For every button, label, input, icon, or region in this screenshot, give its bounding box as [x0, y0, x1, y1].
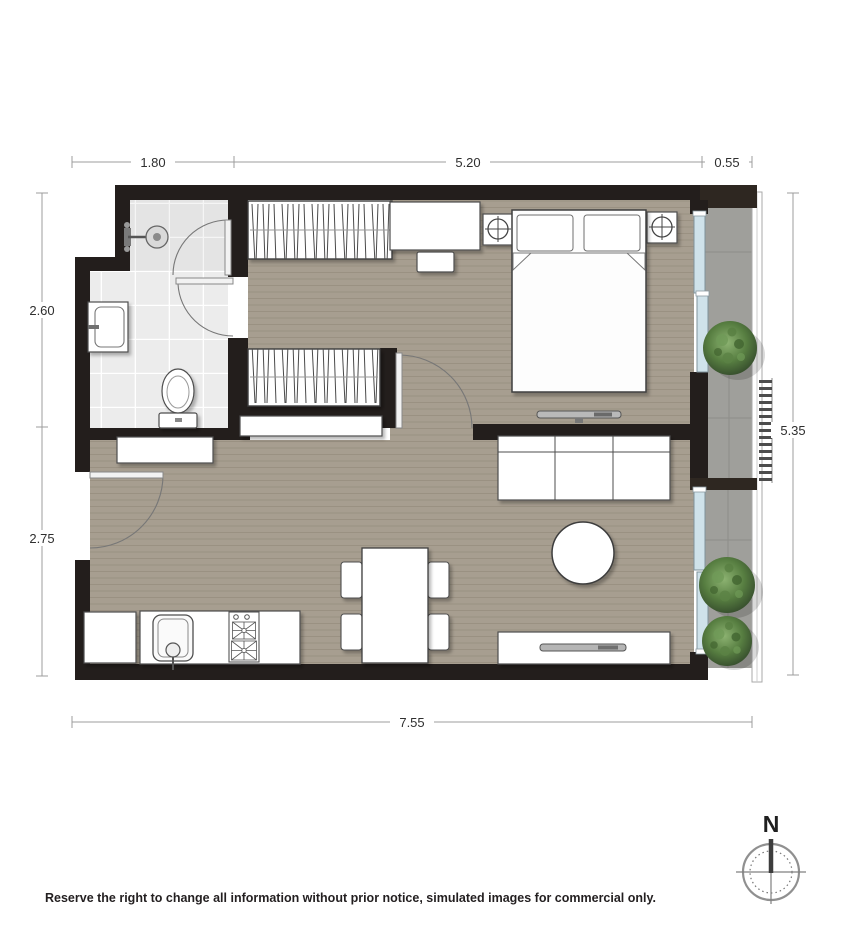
dining-chair: [341, 614, 362, 650]
shower-floor-tint: [130, 200, 228, 271]
living-slider-panel-1: [694, 490, 705, 570]
pillow: [517, 215, 573, 251]
wardrobe-1: [248, 201, 392, 259]
dim-left-1: 2.60: [29, 303, 54, 318]
dressing-corridor-floor: [248, 259, 392, 350]
wash-basin: [88, 302, 128, 352]
dining-chair: [428, 562, 449, 598]
dim-top-3: 0.55: [714, 155, 739, 170]
storage-shelf: [240, 416, 382, 436]
desk: [390, 202, 480, 250]
dim-bottom-1: 7.55: [399, 715, 424, 730]
disclaimer-text: Reserve the right to change all informat…: [45, 891, 656, 905]
wall-wardrobe-bottom: [235, 405, 397, 417]
stool: [417, 252, 454, 272]
entry-console: [117, 437, 213, 463]
dim-top-1: 1.80: [140, 155, 165, 170]
wall-bottom: [75, 664, 708, 680]
wardrobe-2: [248, 349, 380, 406]
pillow: [584, 215, 640, 251]
nightstand-right: [647, 212, 677, 243]
dim-top-2: 5.20: [455, 155, 480, 170]
sofa: [498, 436, 670, 500]
wall-right-bottom: [690, 652, 708, 680]
dim-right-1: 5.35: [780, 423, 805, 438]
dim-left-2: 2.75: [29, 531, 54, 546]
nightstand-left: [483, 214, 513, 245]
dining-table: [362, 548, 428, 663]
floor-plan-drawing: 1.80 5.20 0.55 2.60 2.75 5.35 7.55 N Res…: [0, 0, 845, 932]
compass-north-label: N: [763, 811, 780, 837]
kitchen: [84, 611, 300, 670]
stove: [229, 612, 259, 662]
fridge: [84, 612, 136, 663]
tv-console: [498, 632, 670, 664]
compass-rose: N: [736, 811, 806, 904]
coffee-table: [552, 522, 614, 584]
dining-chair: [428, 614, 449, 650]
floor-plan-page: 1.80 5.20 0.55 2.60 2.75 5.35 7.55 N Res…: [0, 0, 845, 932]
double-bed: [512, 210, 646, 392]
dining-chair: [341, 562, 362, 598]
wall-left-step: [75, 257, 130, 271]
toilet: [159, 369, 197, 428]
wall-top: [115, 185, 700, 200]
wall-right-mid: [690, 372, 708, 490]
bedroom-slider-panel-1: [694, 214, 705, 293]
wall-left-upper: [75, 271, 90, 472]
